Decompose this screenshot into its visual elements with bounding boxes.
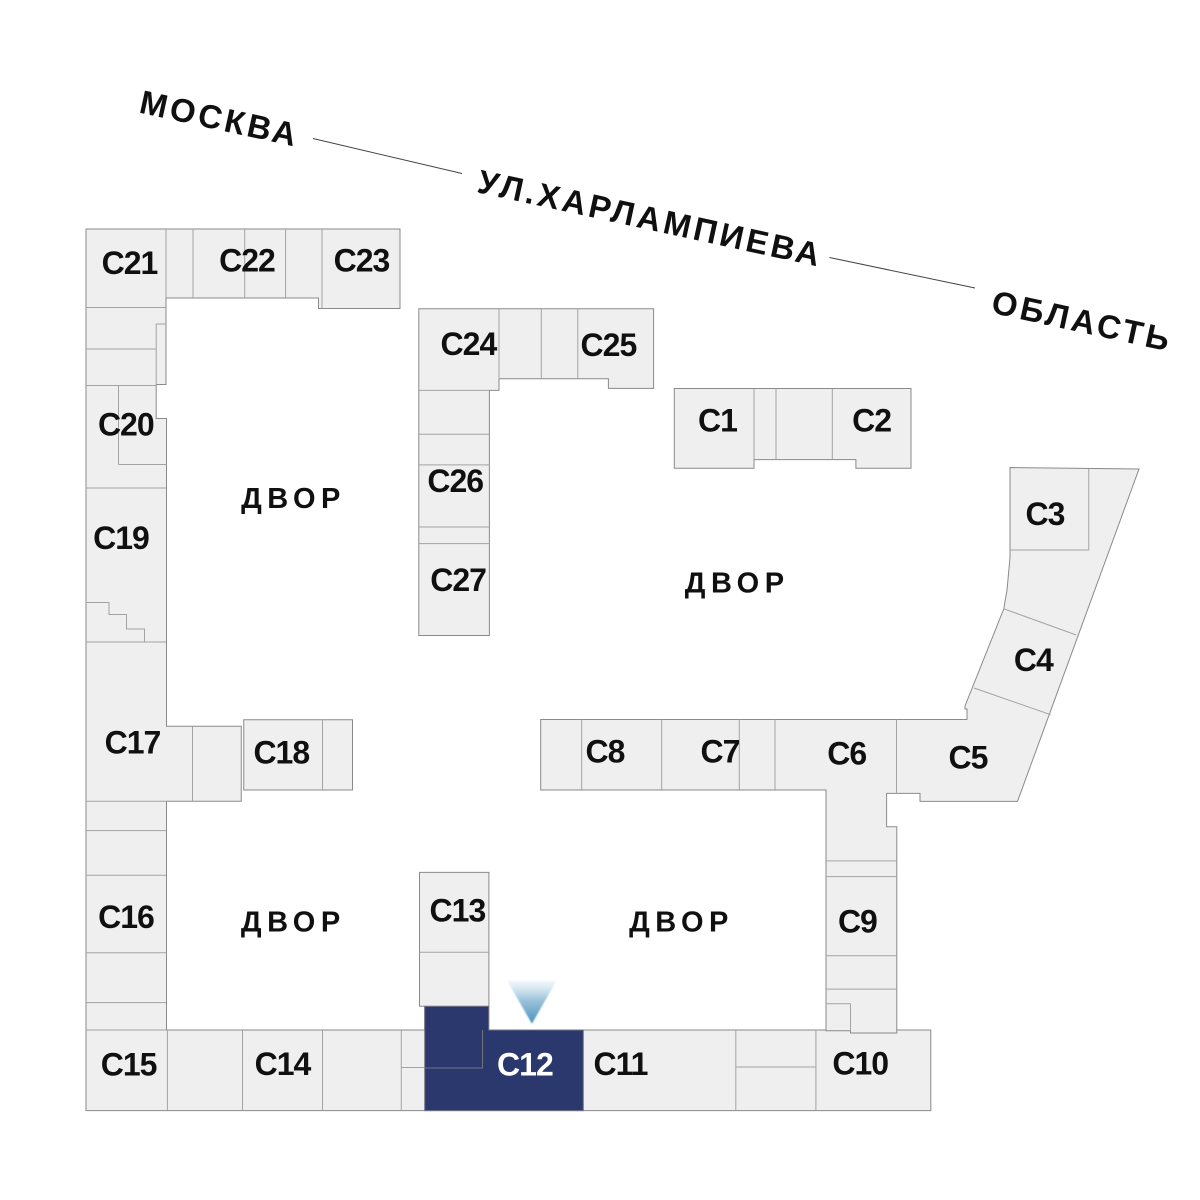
svg-text:C27: C27 (430, 562, 486, 598)
svg-text:C12: C12 (497, 1047, 553, 1083)
svg-text:УЛ.ХАРЛАМПИЕВА: УЛ.ХАРЛАМПИЕВА (475, 163, 827, 274)
svg-text:C8: C8 (586, 734, 625, 770)
svg-text:ДВОР: ДВОР (629, 907, 734, 939)
svg-text:C24: C24 (441, 326, 498, 362)
svg-text:МОСКВА: МОСКВА (137, 83, 304, 154)
svg-text:C17: C17 (105, 725, 161, 761)
svg-text:C6: C6 (827, 735, 866, 771)
svg-text:C20: C20 (98, 407, 154, 443)
svg-text:C3: C3 (1026, 496, 1065, 532)
svg-text:C26: C26 (427, 463, 483, 499)
svg-text:C18: C18 (253, 735, 309, 771)
svg-text:C7: C7 (701, 734, 740, 770)
svg-text:C5: C5 (949, 739, 988, 775)
svg-text:C25: C25 (581, 327, 637, 363)
svg-text:C16: C16 (98, 899, 154, 935)
svg-text:C11: C11 (594, 1046, 648, 1082)
svg-text:C2: C2 (852, 403, 891, 439)
svg-text:C14: C14 (255, 1046, 312, 1082)
svg-text:C9: C9 (838, 903, 877, 939)
svg-text:ДВОР: ДВОР (241, 907, 346, 939)
svg-text:ОБЛАСТЬ: ОБЛАСТЬ (989, 283, 1177, 358)
svg-text:C4: C4 (1014, 642, 1054, 678)
svg-text:C23: C23 (334, 243, 390, 279)
svg-text:C22: C22 (219, 243, 275, 279)
svg-text:C1: C1 (698, 403, 737, 439)
svg-text:C10: C10 (832, 1045, 888, 1081)
svg-text:C21: C21 (102, 245, 158, 281)
svg-text:ДВОР: ДВОР (685, 568, 790, 600)
svg-text:ДВОР: ДВОР (241, 483, 346, 515)
svg-text:C15: C15 (101, 1047, 157, 1083)
svg-text:C13: C13 (430, 893, 486, 929)
svg-text:C19: C19 (93, 520, 149, 556)
